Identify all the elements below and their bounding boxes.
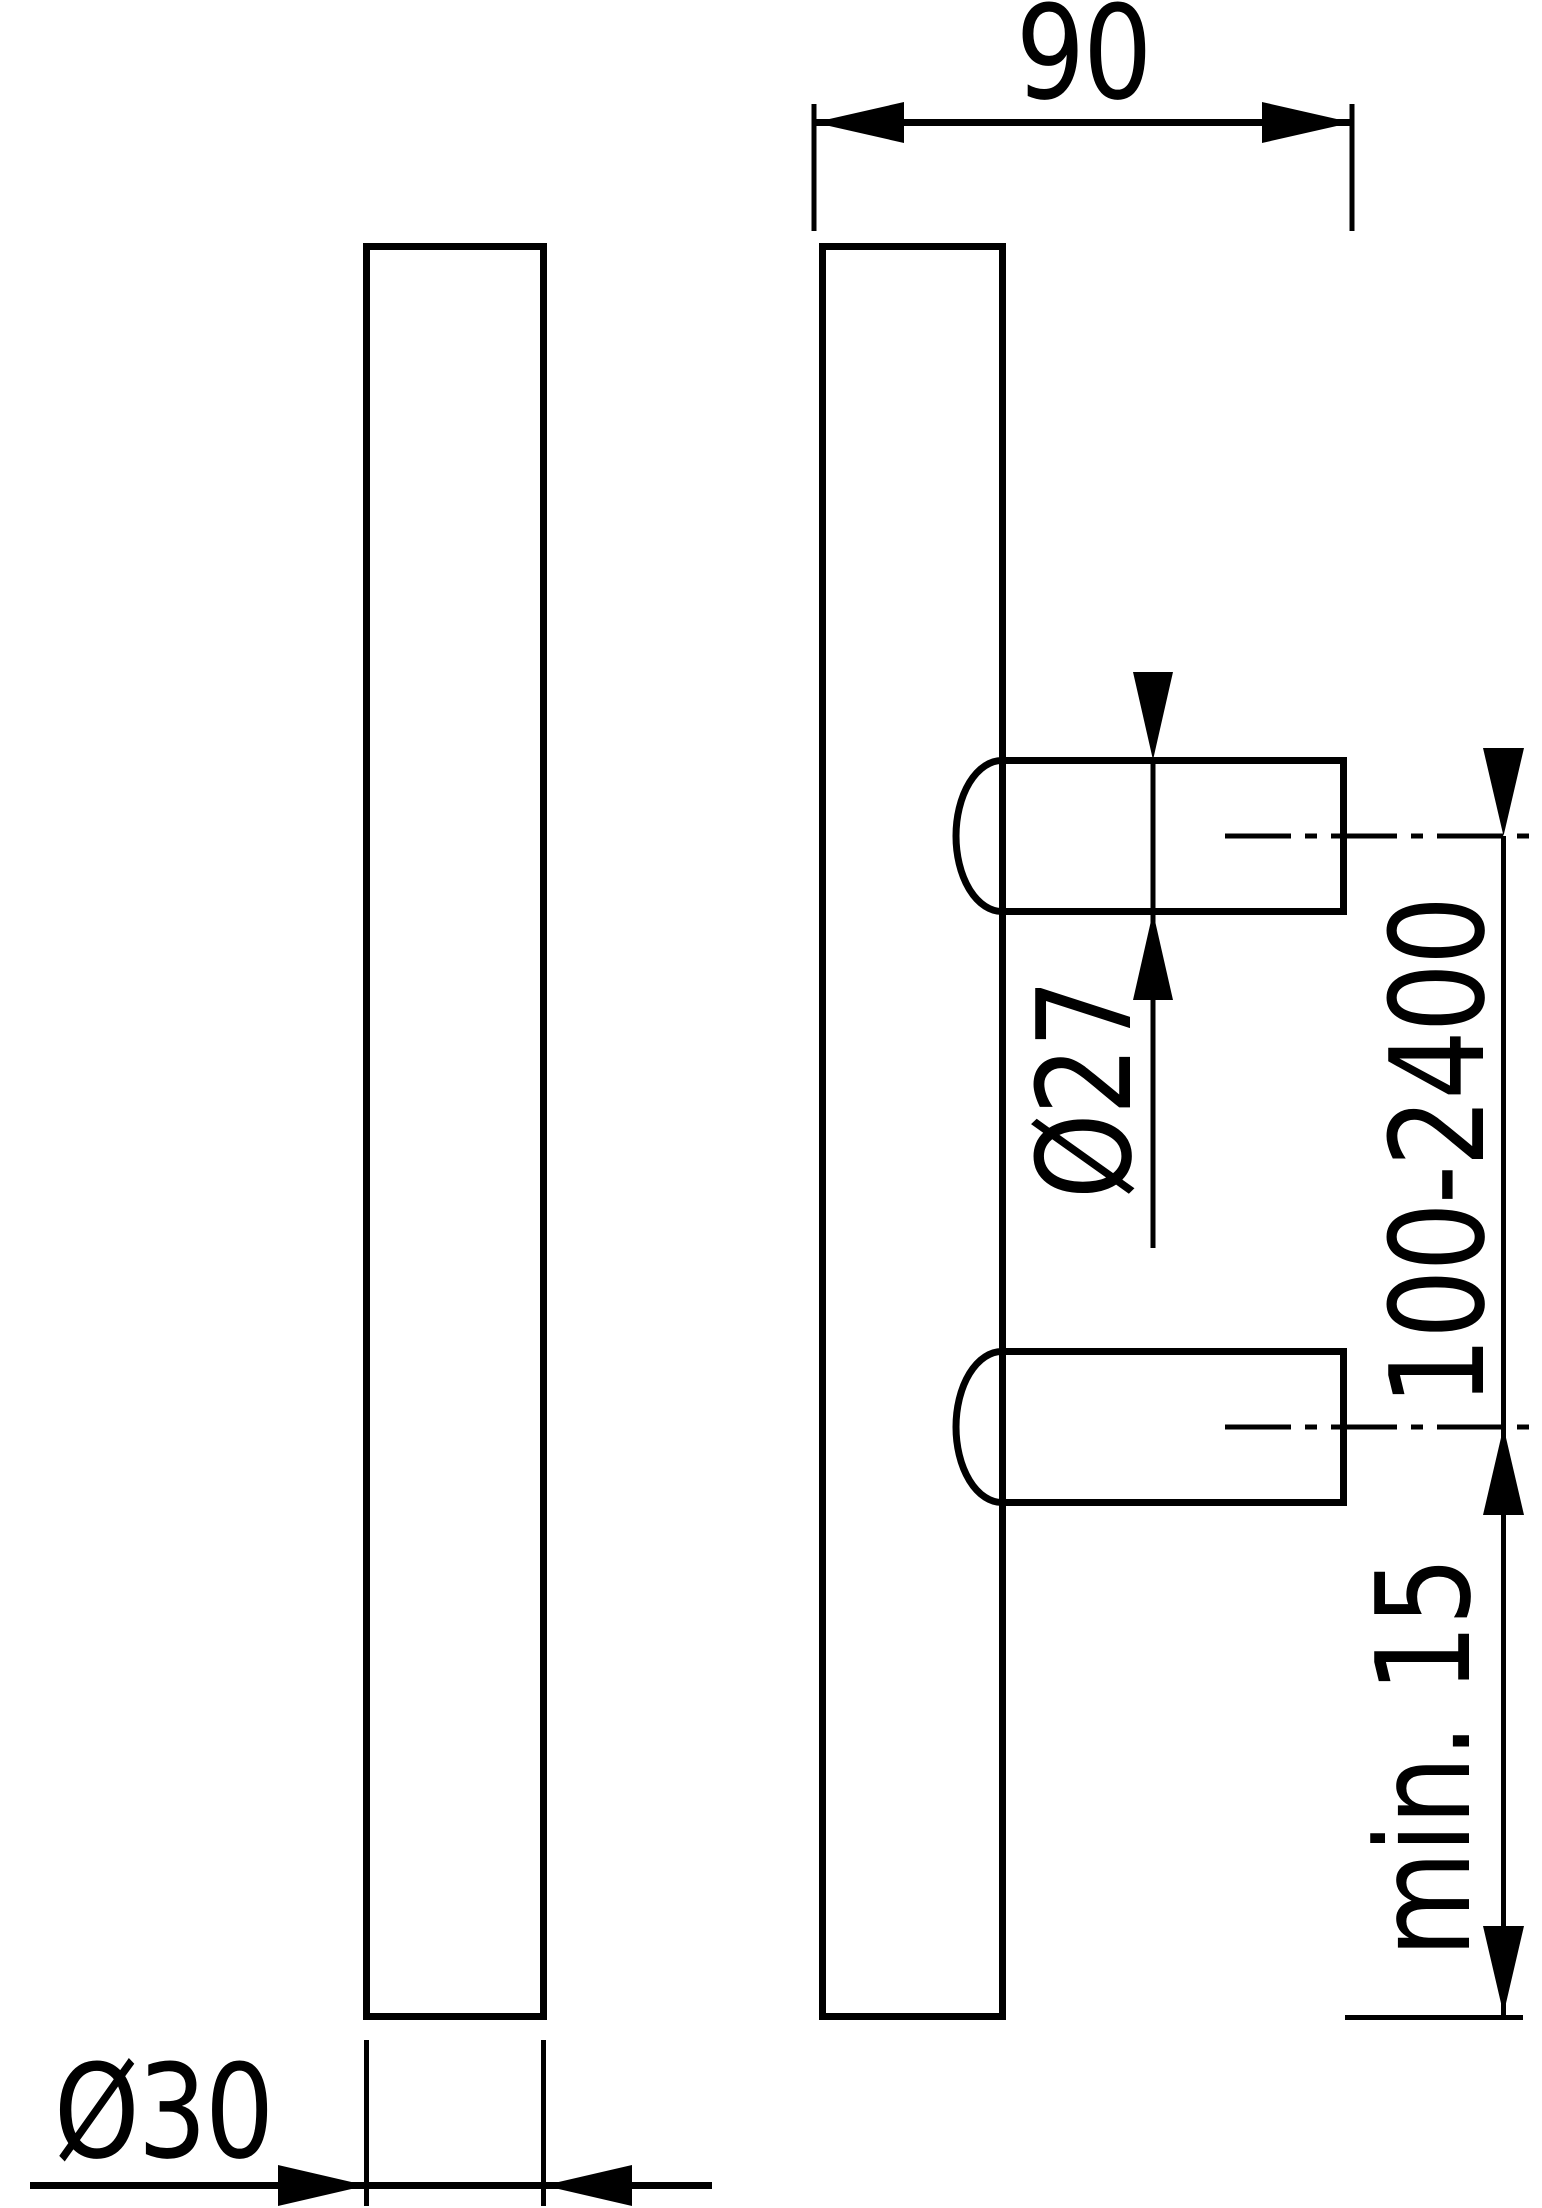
dim-label-min-15: min. 15	[1359, 1540, 1489, 1977]
dim-o27-arrowhead-top	[1133, 672, 1173, 760]
upper-post-outline	[1002, 761, 1344, 912]
technical-drawing-page: 90 Ø27 100-2400 min. 15 Ø30	[0, 0, 1542, 2208]
front-view-bar-outline	[823, 247, 1003, 2017]
dim-label-o27: Ø27	[1020, 956, 1150, 1225]
dim-90-arrowhead-left	[814, 102, 904, 143]
dim-100-2400-arrowhead-bottom	[1483, 1427, 1524, 1515]
side-view-bar-outline	[367, 247, 544, 2017]
lower-post-outline	[1002, 1352, 1344, 1503]
object-outlines	[367, 247, 1344, 2017]
technical-drawing-canvas	[0, 0, 1542, 2208]
dim-100-2400-arrowhead-top	[1483, 748, 1524, 836]
dim-label-90: 90	[857, 0, 1309, 106]
upper-post-dome-arc	[956, 761, 1002, 912]
dim-o30-arrowhead-right	[544, 2165, 633, 2206]
dim-label-100-2400: 100-2400	[1373, 883, 1503, 1421]
lower-post-dome-arc	[956, 1352, 1002, 1503]
dim-label-o30: Ø30	[20, 2047, 306, 2177]
dim-90-arrowhead-right	[1262, 102, 1352, 143]
